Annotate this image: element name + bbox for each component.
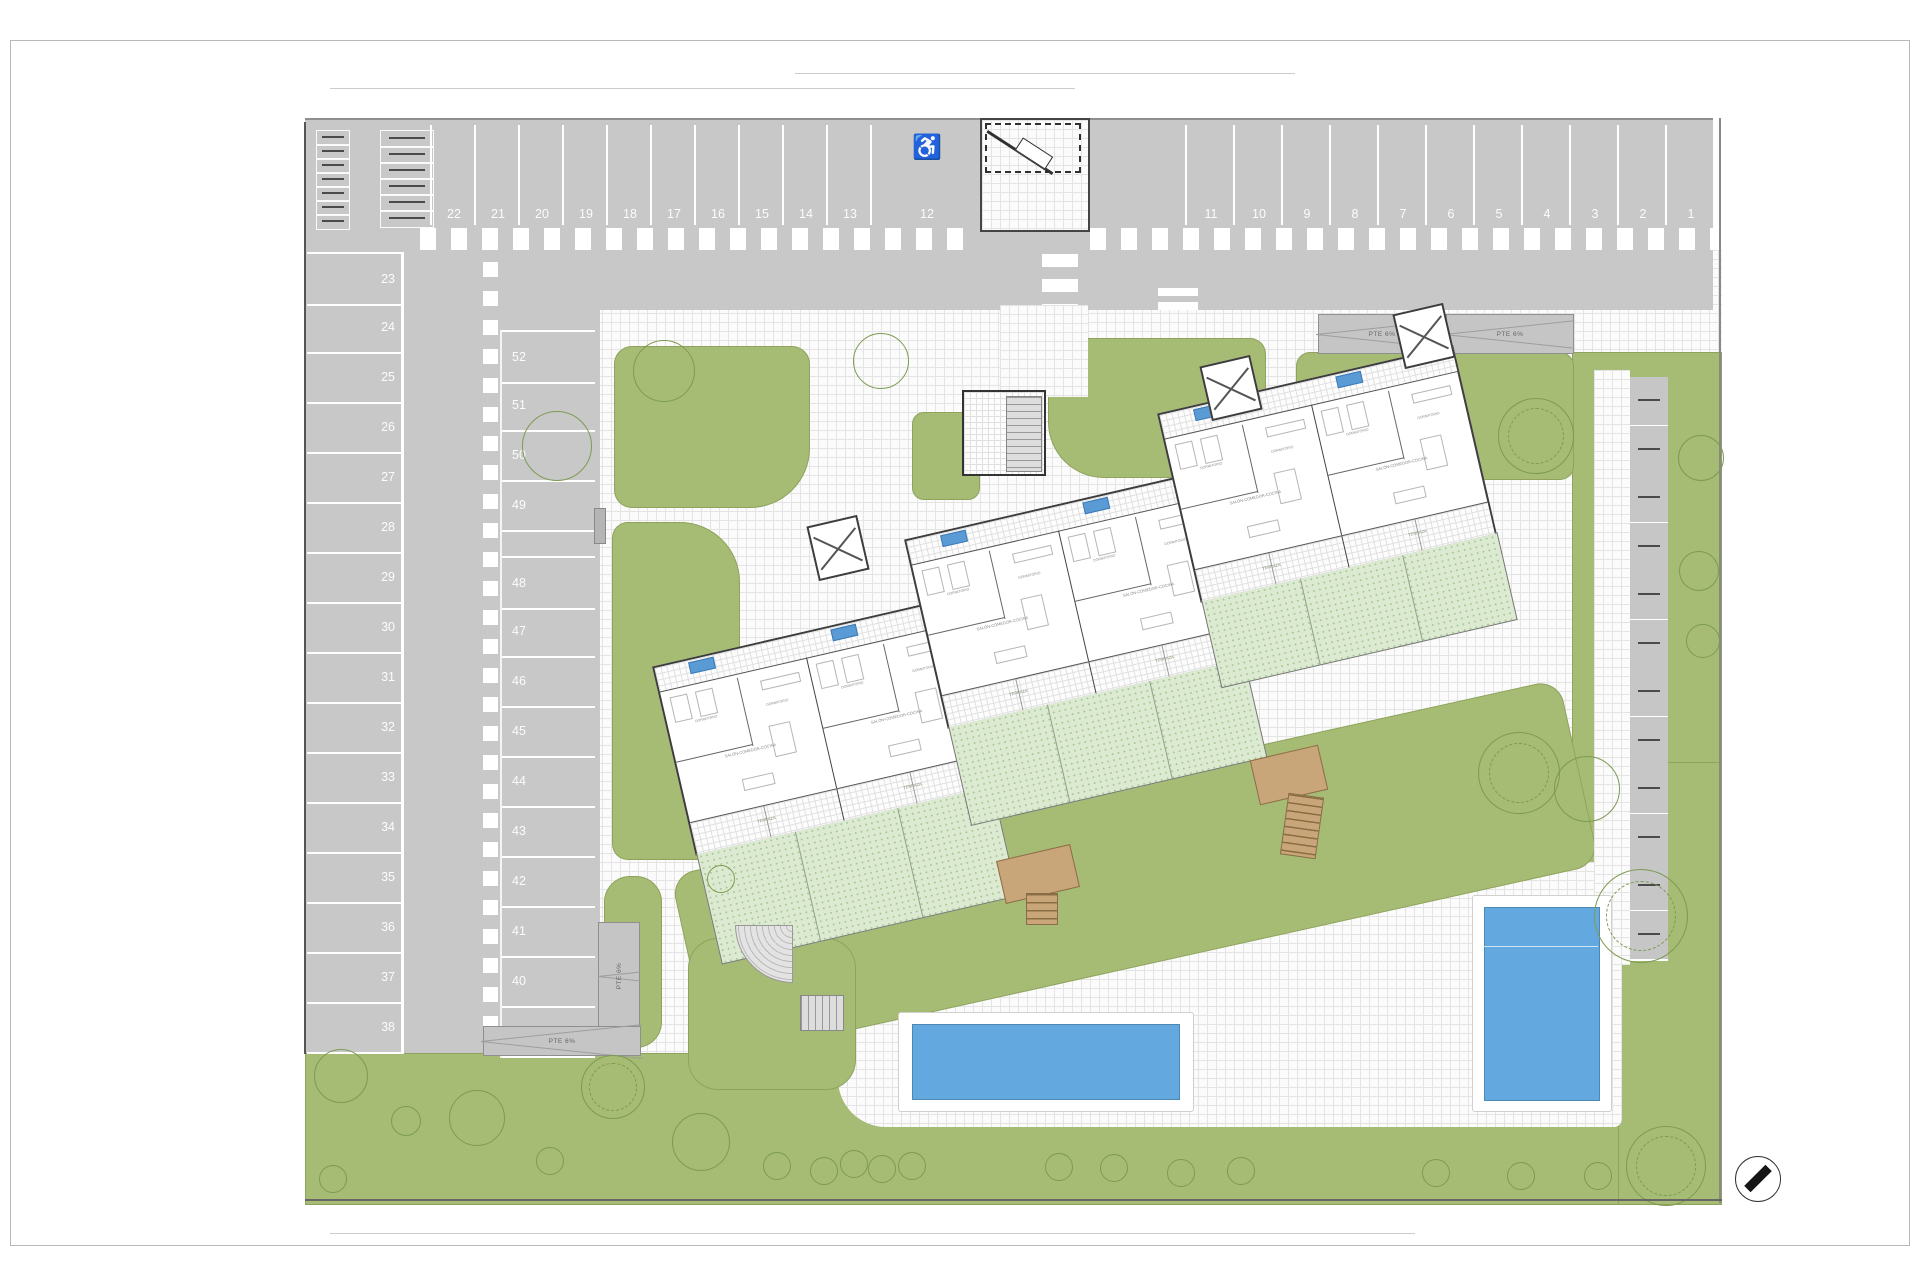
parking-spot: 34 <box>307 802 403 854</box>
parking-spot-number: 30 <box>381 620 395 634</box>
parking-spot: 21 <box>474 125 520 225</box>
furniture <box>742 772 776 791</box>
north-needle <box>1744 1165 1772 1193</box>
bush <box>898 1152 926 1180</box>
parking-spot-number: 10 <box>1235 207 1283 221</box>
bush <box>868 1155 896 1183</box>
bike-icon <box>1638 399 1661 401</box>
parking-spot: 27 <box>307 452 403 504</box>
garden-divider <box>1402 555 1423 641</box>
ramp-label: PTE 6% <box>566 956 672 996</box>
parking-spot: 37 <box>307 952 403 1004</box>
furniture <box>669 694 692 723</box>
bike-rack-stall <box>316 214 350 230</box>
furniture <box>1174 441 1197 470</box>
parking-spot-number: 43 <box>512 824 526 838</box>
parking-spot-number: 41 <box>512 924 526 938</box>
parking-spot: 26 <box>307 402 403 454</box>
furniture <box>1346 401 1369 430</box>
furniture <box>1140 611 1174 630</box>
furniture <box>695 688 718 717</box>
parking-spot-number: 5 <box>1475 207 1523 221</box>
parking-spot-number: 4 <box>1523 207 1571 221</box>
parking-spot-number: 24 <box>381 320 395 334</box>
parking-spot: 3 <box>1569 125 1619 225</box>
parking-spot: 8 <box>1329 125 1379 225</box>
furniture <box>1247 519 1281 538</box>
tree <box>633 340 695 402</box>
parking-spot-number: 21 <box>476 207 520 221</box>
room-label: DORMITORIO <box>996 567 1063 586</box>
parking-spot: 44 <box>502 756 595 808</box>
parking-spot-number: 26 <box>381 420 395 434</box>
bike-rack-stall <box>1630 474 1668 524</box>
parking-spot: 5 <box>1473 125 1523 225</box>
parking-spot: 7 <box>1377 125 1427 225</box>
tree <box>581 1055 645 1119</box>
bike-icon <box>322 150 344 152</box>
parking-spot-number: 11 <box>1187 207 1235 221</box>
bike-icon <box>1638 496 1661 498</box>
parking-spot-number: 47 <box>512 624 526 638</box>
entrance-structure <box>980 118 1090 232</box>
bush <box>1584 1162 1612 1190</box>
parking-spot: 23 <box>307 252 403 306</box>
stair-block <box>962 390 1046 476</box>
tree <box>1626 1126 1706 1206</box>
parking-spot-number: 32 <box>381 720 395 734</box>
north-arrow <box>1735 1156 1781 1202</box>
parking-spot-number: 40 <box>512 974 526 988</box>
parking-spot-number: 1 <box>1667 207 1715 221</box>
terrace-divider <box>1341 536 1349 567</box>
parking-spot-number: 35 <box>381 870 395 884</box>
tree <box>1594 869 1688 963</box>
parking-spot-number: 49 <box>512 498 526 512</box>
furniture <box>888 738 922 757</box>
parking-spot: 20 <box>518 125 564 225</box>
parking-spot-number: 16 <box>696 207 740 221</box>
bike-icon <box>322 192 344 194</box>
parking-spot: 35 <box>307 852 403 904</box>
bush <box>1422 1159 1450 1187</box>
bush <box>1100 1154 1128 1182</box>
garden-divider <box>897 808 923 917</box>
parking-spot-number: 28 <box>381 520 395 534</box>
bike-rack-stall <box>1630 523 1668 573</box>
garden-divider <box>1149 681 1173 779</box>
garden-divider <box>795 832 821 941</box>
parking-spot-number: 37 <box>381 970 395 984</box>
bike-icon <box>1638 787 1661 789</box>
bike-icon <box>1638 739 1661 741</box>
parking-spot-number: 14 <box>784 207 828 221</box>
parking-spot: 2 <box>1617 125 1667 225</box>
site-boundary-right <box>1719 118 1721 1203</box>
court-dashed-line <box>483 262 498 1042</box>
parking-spot: 25 <box>307 352 403 404</box>
bike-rack-stall <box>1630 620 1668 670</box>
parking-spot-number: 12 <box>872 207 982 221</box>
bike-icon <box>322 220 344 222</box>
parking-spot: 10 <box>1233 125 1283 225</box>
tree <box>522 411 592 481</box>
furniture <box>760 672 801 691</box>
ramp-court-vertical: PTE 6% <box>598 922 640 1030</box>
giveway-bar <box>1158 302 1198 310</box>
wood-stair <box>1026 893 1058 925</box>
bike-rack-stall <box>1630 426 1668 476</box>
crosswalk-stripes <box>420 228 975 250</box>
swimming-pool-small <box>1484 907 1600 1101</box>
furniture <box>947 561 970 590</box>
furniture <box>1393 485 1427 504</box>
tree <box>1678 435 1724 481</box>
parking-spot: 48 <box>502 556 595 610</box>
parking-spot: 13 <box>826 125 872 225</box>
bike-icon <box>389 153 425 155</box>
bush <box>707 865 735 893</box>
parking-spot: 24 <box>307 302 403 354</box>
parking-spot-number: 27 <box>381 470 395 484</box>
bike-icon <box>322 164 344 166</box>
handicap-icon: ♿ <box>872 133 982 162</box>
furniture <box>1200 435 1223 464</box>
parking-spot: 46 <box>502 656 595 708</box>
tree <box>1478 732 1560 814</box>
bike-icon <box>322 206 344 208</box>
bike-icon <box>1638 836 1661 838</box>
bike-rack-stall <box>1630 668 1668 718</box>
furniture <box>841 654 864 683</box>
bike-rack-stall <box>1630 814 1668 864</box>
bike-icon <box>322 178 344 180</box>
site-plan: 22212019181716151413♿1211109876543212324… <box>0 0 1920 1280</box>
stone-stair <box>800 995 844 1031</box>
bike-icon <box>389 201 425 203</box>
bike-icon <box>1638 690 1661 692</box>
parking-spot: 17 <box>650 125 696 225</box>
bike-rack-stall <box>380 210 434 228</box>
ramp-label: PTE 6% <box>484 1027 640 1055</box>
furniture <box>1093 527 1116 556</box>
tree <box>449 1090 505 1146</box>
ramp-north-east: PTE 6% <box>1446 314 1574 354</box>
bike-icon <box>1638 545 1661 547</box>
parking-spot: 28 <box>307 502 403 554</box>
parking-spot: 31 <box>307 652 403 704</box>
parking-spot: 15 <box>738 125 784 225</box>
swimming-pool-main <box>912 1024 1180 1100</box>
parking-spot: 52 <box>502 330 595 384</box>
lane-line <box>500 330 502 1058</box>
parking-spot-number: 44 <box>512 774 526 788</box>
giveway-bar <box>1158 288 1198 296</box>
parking-spot: 47 <box>502 606 595 658</box>
parking-spot-number: 29 <box>381 570 395 584</box>
bike-icon <box>389 185 425 187</box>
pool-lane-line <box>1484 946 1598 947</box>
parking-spot-number: 31 <box>381 670 395 684</box>
bike-rack-stall <box>1630 765 1668 815</box>
parking-spot: 33 <box>307 752 403 804</box>
tree <box>1554 756 1620 822</box>
parking-spot: 1 <box>1665 125 1715 225</box>
room-label: DORMITORIO <box>744 694 811 713</box>
ramp-court-horizontal: PTE 6% <box>483 1026 641 1056</box>
furniture <box>1265 419 1306 438</box>
site-boundary-left <box>304 122 306 1054</box>
site-plan-sheet: 22212019181716151413♿1211109876543212324… <box>0 0 1920 1280</box>
utility-box <box>594 508 606 544</box>
parking-spot-number: 25 <box>381 370 395 384</box>
parking-spot-number: 48 <box>512 576 526 590</box>
room-label: DORMITORIO <box>1395 407 1462 426</box>
ramp-label: PTE 6% <box>1447 315 1573 353</box>
parking-spot: 18 <box>606 125 652 225</box>
parking-spot-number: 42 <box>512 874 526 888</box>
bush <box>840 1150 868 1178</box>
furniture <box>994 645 1028 664</box>
parking-spot: 29 <box>307 552 403 604</box>
parking-spot: 42 <box>502 856 595 908</box>
bike-rack-stall <box>1630 571 1668 621</box>
site-boundary-bottom <box>305 1199 1722 1201</box>
parking-spot-number: 13 <box>828 207 872 221</box>
stair-treads <box>1006 396 1042 472</box>
bush <box>1045 1153 1073 1181</box>
crosswalk-stripes <box>1090 228 1713 250</box>
parking-spot: 30 <box>307 602 403 654</box>
bike-icon <box>1638 642 1661 644</box>
furniture <box>1068 533 1091 562</box>
parking-spot: 36 <box>307 902 403 954</box>
reference-line <box>330 88 1075 89</box>
bike-icon <box>1638 448 1661 450</box>
parking-spot-number: 52 <box>512 350 526 364</box>
parking-spot: 14 <box>782 125 828 225</box>
parking-spot-number: 8 <box>1331 207 1379 221</box>
bike-rack-stall <box>1630 377 1668 427</box>
bike-icon <box>389 217 425 219</box>
parking-spot-number: 15 <box>740 207 784 221</box>
garden-divider <box>1047 705 1071 803</box>
parking-spot: 11 <box>1185 125 1235 225</box>
parking-spot: 38 <box>307 1002 403 1054</box>
parking-spot-number: 19 <box>564 207 608 221</box>
parking-spot: 19 <box>562 125 608 225</box>
entrance-path <box>1000 305 1088 397</box>
parking-spot: 4 <box>1521 125 1571 225</box>
garden-divider <box>1300 579 1321 665</box>
parking-spot-number: 22 <box>432 207 476 221</box>
bike-icon <box>389 137 425 139</box>
parking-spot-number: 45 <box>512 724 526 738</box>
bike-icon <box>389 169 425 171</box>
tree <box>672 1113 730 1171</box>
bush <box>1507 1162 1535 1190</box>
parking-spot: 41 <box>502 906 595 958</box>
lane-line <box>401 252 404 1054</box>
tree <box>853 333 909 389</box>
tree <box>1679 551 1719 591</box>
parking-spot: 43 <box>502 806 595 858</box>
room-label: DORMITORIO <box>1249 441 1316 460</box>
reference-line <box>330 1233 1415 1234</box>
parking-spot: 16 <box>694 125 740 225</box>
parking-spot-number: 46 <box>512 674 526 688</box>
bush <box>391 1106 421 1136</box>
bush <box>319 1165 347 1193</box>
furniture <box>921 567 944 596</box>
furniture <box>816 660 839 689</box>
furniture <box>1012 545 1053 564</box>
bush <box>810 1157 838 1185</box>
parking-spot-number: 17 <box>652 207 696 221</box>
parking-spot-handicap: ♿12 <box>870 125 984 225</box>
tree <box>1498 398 1574 474</box>
parking-spot: 49 <box>502 480 595 532</box>
bush <box>1227 1157 1255 1185</box>
terrace-divider <box>1088 662 1096 693</box>
parking-spot-number: 38 <box>381 1020 395 1034</box>
terrace-divider <box>836 789 844 820</box>
bush <box>536 1147 564 1175</box>
parking-spot-number: 23 <box>381 272 395 286</box>
parking-spot: 6 <box>1425 125 1475 225</box>
parking-spot-number: 7 <box>1379 207 1427 221</box>
furniture <box>1411 385 1452 404</box>
bush <box>1167 1159 1195 1187</box>
reference-line <box>795 73 1295 74</box>
bush <box>1686 624 1720 658</box>
bike-rack-stall <box>1630 717 1668 767</box>
furniture <box>1321 407 1344 436</box>
parking-spot-number: 33 <box>381 770 395 784</box>
bush <box>763 1152 791 1180</box>
parking-spot: 22 <box>430 125 476 225</box>
parking-spot: 9 <box>1281 125 1331 225</box>
parking-spot-number: 51 <box>512 398 526 412</box>
parking-spot-number: 18 <box>608 207 652 221</box>
parking-spot-number: 36 <box>381 920 395 934</box>
parking-spot: 32 <box>307 702 403 754</box>
parking-spot-number: 20 <box>520 207 564 221</box>
parking-spot: 45 <box>502 706 595 758</box>
parking-spot-number: 2 <box>1619 207 1667 221</box>
bike-icon <box>1638 593 1661 595</box>
parking-spot-number: 34 <box>381 820 395 834</box>
parking-spot-number: 9 <box>1283 207 1331 221</box>
tree <box>314 1049 368 1103</box>
parking-spot-number: 3 <box>1571 207 1619 221</box>
parking-spot-number: 6 <box>1427 207 1475 221</box>
bike-icon <box>322 136 344 138</box>
